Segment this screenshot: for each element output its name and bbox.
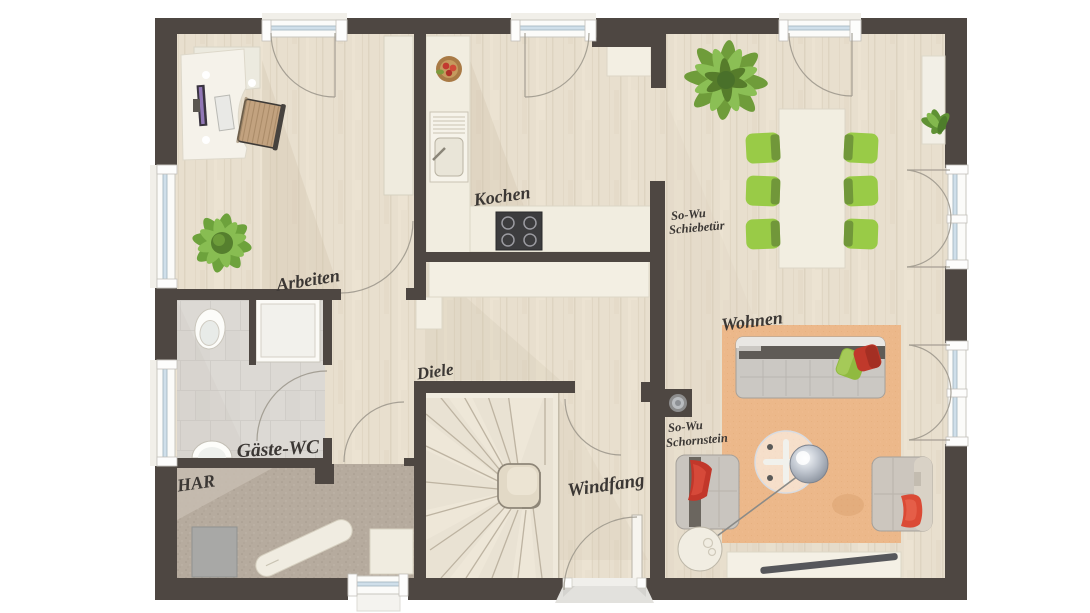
svg-text:Gäste-WC: Gäste-WC <box>236 437 320 462</box>
